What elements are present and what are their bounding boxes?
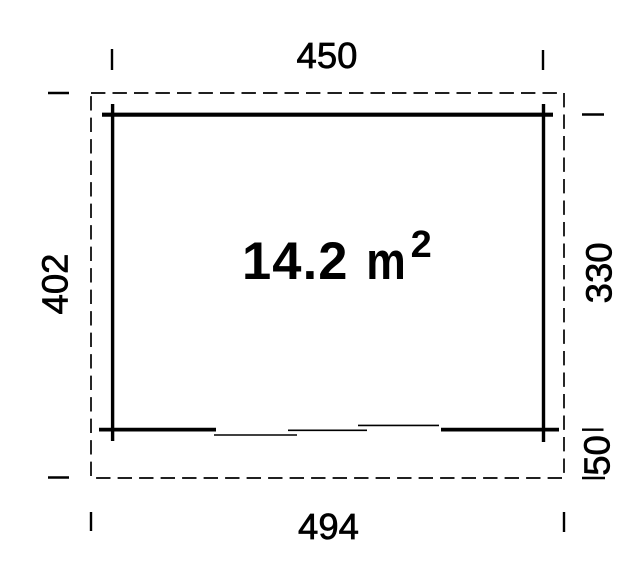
svg-text:14.2m2: 14.2m2 bbox=[242, 224, 433, 291]
svg-text:50: 50 bbox=[577, 435, 618, 476]
svg-text:450: 450 bbox=[297, 35, 358, 76]
svg-text:494: 494 bbox=[298, 506, 359, 547]
svg-text:402: 402 bbox=[35, 254, 76, 315]
svg-text:330: 330 bbox=[579, 242, 620, 303]
